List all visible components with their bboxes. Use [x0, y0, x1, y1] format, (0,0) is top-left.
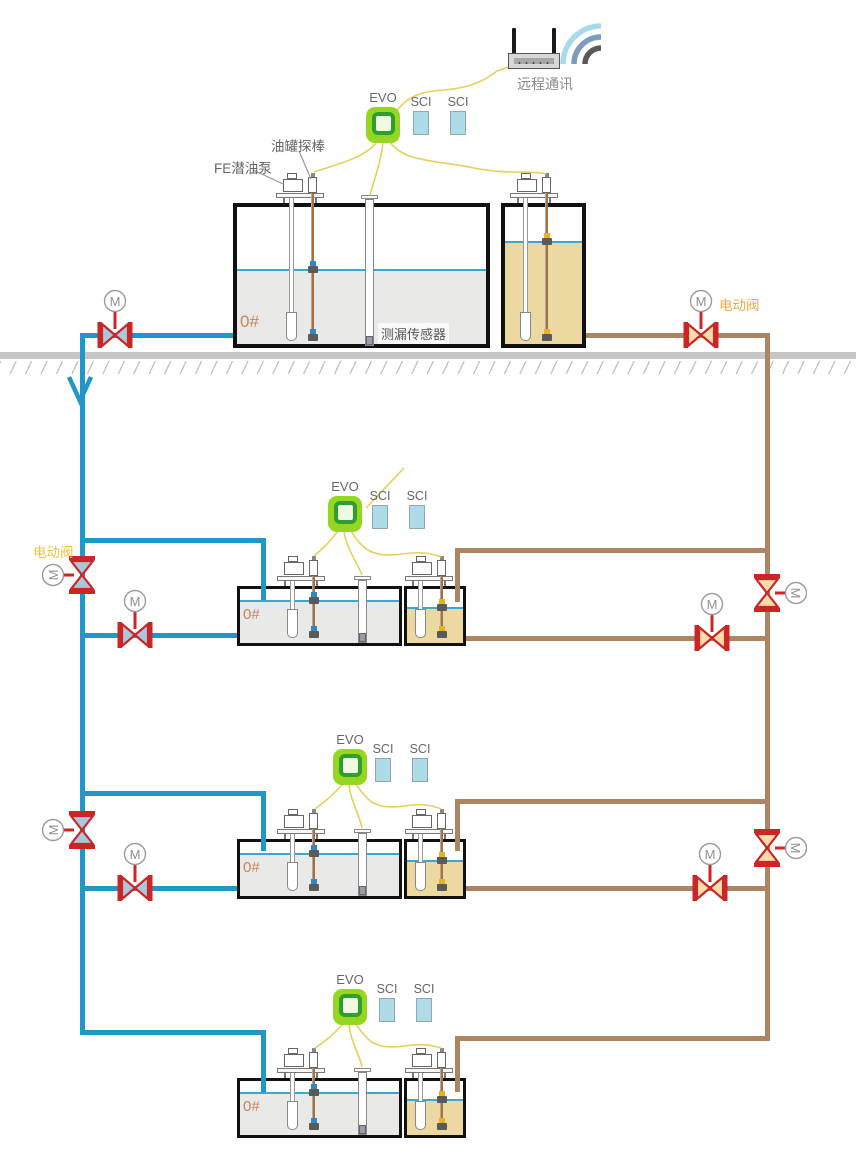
sci-module: SCI [405, 742, 435, 782]
sci-label: SCI [402, 489, 432, 503]
tank-liquid [240, 1092, 399, 1135]
probe-connector [542, 334, 552, 341]
product-pipe-blue [80, 886, 239, 891]
motorized-valve: M [686, 842, 734, 902]
tank-probe-head [308, 177, 317, 193]
tank-probe-nub [440, 1048, 444, 1052]
leak-sensor-probe [359, 633, 366, 642]
sci-label: SCI [406, 95, 436, 109]
pump-motor-cap [288, 556, 298, 562]
remote-comm-label: 远程通讯 [517, 74, 597, 94]
submersible-pump [415, 609, 426, 638]
sci-label: SCI [409, 982, 439, 996]
platform-leg [284, 834, 286, 839]
fuel-station-monitoring-diagram: 远程通讯 EVO SCI SCI EVO SCI SCI EVO SCI SCI… [0, 0, 856, 1154]
pump-motor-cap [521, 173, 531, 179]
leak-sensor-probe [366, 336, 373, 345]
submersible-pump [415, 1101, 426, 1130]
tank-probe-nub [545, 173, 549, 177]
product-pipe-blue [80, 633, 239, 638]
valve-motor-letter: M [788, 588, 803, 599]
tank-probe-nub [440, 556, 444, 560]
pump-motor [412, 1054, 432, 1067]
pump-motor [284, 562, 304, 575]
evo-label: EVO [366, 90, 400, 105]
submersible-pump [520, 312, 531, 341]
pump-drop-tube [418, 834, 423, 862]
motorized-valve: M [688, 592, 736, 652]
product-pipe-brown [455, 1036, 460, 1092]
tank-liquid [240, 853, 399, 896]
surface-tank-right [501, 203, 586, 348]
probe-connector [309, 850, 319, 857]
motorized-valve: M [111, 842, 159, 902]
probe-connector [437, 884, 447, 891]
valve-motor-letter: M [130, 847, 141, 862]
tank-probe-nub [312, 809, 316, 813]
product-pipe-blue [261, 1030, 266, 1092]
sci-label: SCI [368, 742, 398, 756]
motorized-valve: M [91, 289, 139, 349]
valve-motor-letter: M [46, 570, 61, 581]
valve-motor-letter: M [707, 597, 718, 612]
tank-probe-head [437, 813, 446, 829]
evo-console-icon [333, 989, 367, 1025]
pump-drop-tube [523, 198, 528, 312]
tank-liquid [240, 600, 399, 643]
probe-connector [437, 1096, 447, 1103]
platform-leg [283, 198, 285, 203]
product-pipe-brown [455, 548, 769, 553]
tank-number: 0# [243, 606, 260, 623]
sci-module-icon [409, 505, 425, 529]
probe-connector [309, 1089, 319, 1096]
probe-connector-cap [439, 879, 445, 884]
sci-module-icon [416, 998, 432, 1022]
evo-console-icon [366, 107, 400, 143]
pump-motor-cap [287, 173, 297, 179]
tank-probe-head [437, 1052, 446, 1068]
product-pipe-blue [80, 538, 265, 543]
tank-probe-head [309, 813, 318, 829]
evo-console-4: EVO [333, 972, 367, 1025]
electric-valve-label-left: 电动阀 [33, 541, 74, 561]
submersible-pump [287, 862, 298, 891]
motorized-valve: M [677, 289, 725, 349]
valve-motor-letter: M [46, 825, 61, 836]
platform-leg [316, 834, 318, 839]
probe-connector-cap [311, 626, 317, 631]
leak-sensor-label: 测漏传感器 [378, 323, 449, 344]
probe-connector-cap [311, 879, 317, 884]
tank-probe-head [542, 177, 551, 193]
evo-console-icon [333, 749, 367, 785]
product-pipe-brown [455, 1036, 769, 1041]
probe-connector-cap [310, 261, 316, 266]
sci-module-icon [372, 505, 388, 529]
valve-motor-letter: M [130, 594, 141, 609]
probe-connector [437, 857, 447, 864]
sci-module-icon [379, 998, 395, 1022]
probe-connector [309, 597, 319, 604]
pump-motor [284, 1054, 304, 1067]
sci-module: SCI [409, 982, 439, 1022]
evo-console-1: EVO [366, 90, 400, 143]
probe-connector-cap [311, 1118, 317, 1123]
pump-motor [412, 815, 432, 828]
sci-label: SCI [443, 95, 473, 109]
pump-motor-cap [288, 1048, 298, 1054]
platform-leg [284, 581, 286, 586]
platform-leg [412, 1073, 414, 1078]
pump-motor-cap [416, 809, 426, 815]
router-antenna-right [552, 28, 556, 55]
tank-probe-nub [311, 173, 315, 177]
pump-motor [517, 179, 537, 192]
sci-label: SCI [372, 982, 402, 996]
probe-connector-cap [544, 233, 550, 238]
sci-label: SCI [365, 489, 395, 503]
probe-connector [308, 266, 318, 273]
platform-leg [315, 198, 317, 203]
sci-module: SCI [372, 982, 402, 1022]
motorized-valve: M [747, 569, 807, 617]
motorized-valve: M [747, 824, 807, 872]
sci-module: SCI [402, 489, 432, 529]
pump-drop-tube [290, 1073, 295, 1101]
pump-drop-tube [418, 581, 423, 609]
probe-connector-cap [439, 1091, 445, 1096]
product-pipe-blue [80, 1030, 265, 1035]
tank-probe-head [309, 560, 318, 576]
platform-leg [412, 581, 414, 586]
valve-motor-letter: M [705, 847, 716, 862]
evo-label: EVO [328, 479, 362, 494]
submersible-pump [286, 312, 297, 341]
valve-motor-letter: M [696, 294, 707, 309]
probe-connector-cap [311, 845, 317, 850]
probe-connector-cap [544, 329, 550, 334]
product-pipe-blue [261, 538, 266, 600]
probe-connector-cap [439, 852, 445, 857]
probe-connector [437, 604, 447, 611]
probe-label: 油罐探棒 [271, 135, 325, 155]
tank-number: 0# [240, 312, 259, 332]
submersible-pump [287, 1101, 298, 1130]
submersible-pump [287, 609, 298, 638]
platform-leg [549, 198, 551, 203]
probe-cable [546, 193, 548, 340]
product-pipe-brown [455, 799, 460, 851]
evo-label: EVO [333, 972, 367, 987]
pump-motor-cap [416, 1048, 426, 1054]
probe-connector [309, 884, 319, 891]
probe-connector-cap [311, 592, 317, 597]
ground-line [0, 352, 856, 359]
platform-leg [412, 834, 414, 839]
probe-connector [542, 238, 552, 245]
sci-module-icon [413, 111, 429, 135]
platform-leg [316, 581, 318, 586]
product-pipe-brown [455, 548, 460, 602]
pump-motor [412, 562, 432, 575]
tank-number: 0# [243, 1098, 260, 1115]
product-pipe-blue [80, 333, 85, 1034]
platform-leg [517, 198, 519, 203]
motorized-valve: M [111, 589, 159, 649]
evo-console-3: EVO [333, 732, 367, 785]
platform-leg [316, 1073, 318, 1078]
probe-connector-cap [439, 599, 445, 604]
platform-leg [284, 1073, 286, 1078]
tank-probe-nub [312, 556, 316, 560]
product-pipe-blue [261, 791, 266, 851]
pump-label: FE潜油泵 [214, 157, 272, 177]
pump-motor-cap [416, 556, 426, 562]
motorized-valve: M [42, 806, 102, 854]
tank-probe-head [309, 1052, 318, 1068]
evo-console-icon [328, 496, 362, 532]
sci-label: SCI [405, 742, 435, 756]
product-pipe-blue [80, 791, 265, 796]
sci-module: SCI [365, 489, 395, 529]
sci-module: SCI [443, 95, 473, 135]
router-front-panel [514, 58, 554, 64]
probe-connector-cap [439, 626, 445, 631]
leak-sensor-probe [359, 886, 366, 895]
submersible-pump [415, 862, 426, 891]
wifi-signal-icon [563, 26, 601, 64]
product-pipe-brown [455, 799, 769, 804]
platform-leg [444, 581, 446, 586]
probe-connector [437, 1123, 447, 1130]
sci-module: SCI [368, 742, 398, 782]
probe-connector [437, 631, 447, 638]
pump-drop-tube [290, 581, 295, 609]
probe-connector-cap [311, 1084, 317, 1089]
sci-module-icon [412, 758, 428, 782]
valve-motor-letter: M [110, 294, 121, 309]
sci-module-icon [450, 111, 466, 135]
tank-probe-head [437, 560, 446, 576]
leak-sensor-probe [359, 1125, 366, 1134]
pump-drop-tube [418, 1073, 423, 1101]
evo-console-2: EVO [328, 479, 362, 532]
ground-hatching [0, 361, 856, 374]
product-pipe-brown [765, 333, 770, 1041]
surface-tank-main [233, 203, 490, 348]
tank-number: 0# [243, 859, 260, 876]
probe-connector [309, 631, 319, 638]
sci-module: SCI [406, 95, 436, 135]
probe-connector-cap [310, 329, 316, 334]
probe-connector [308, 334, 318, 341]
tank-probe-nub [440, 809, 444, 813]
evo-label: EVO [333, 732, 367, 747]
probe-connector [309, 1123, 319, 1130]
valve-motor-letter: M [788, 843, 803, 854]
tank-probe-nub [312, 1048, 316, 1052]
electric-valve-label-right: 电动阀 [719, 294, 760, 314]
pump-motor [283, 179, 303, 192]
platform-leg [444, 1073, 446, 1078]
platform-leg [444, 834, 446, 839]
pump-drop-tube [290, 834, 295, 862]
pump-motor-cap [288, 809, 298, 815]
probe-connector-cap [439, 1118, 445, 1123]
leak-sensor-tube [365, 199, 374, 346]
pump-drop-tube [289, 198, 294, 312]
router-antenna-left [512, 28, 516, 55]
sci-module-icon [375, 758, 391, 782]
pump-motor [284, 815, 304, 828]
